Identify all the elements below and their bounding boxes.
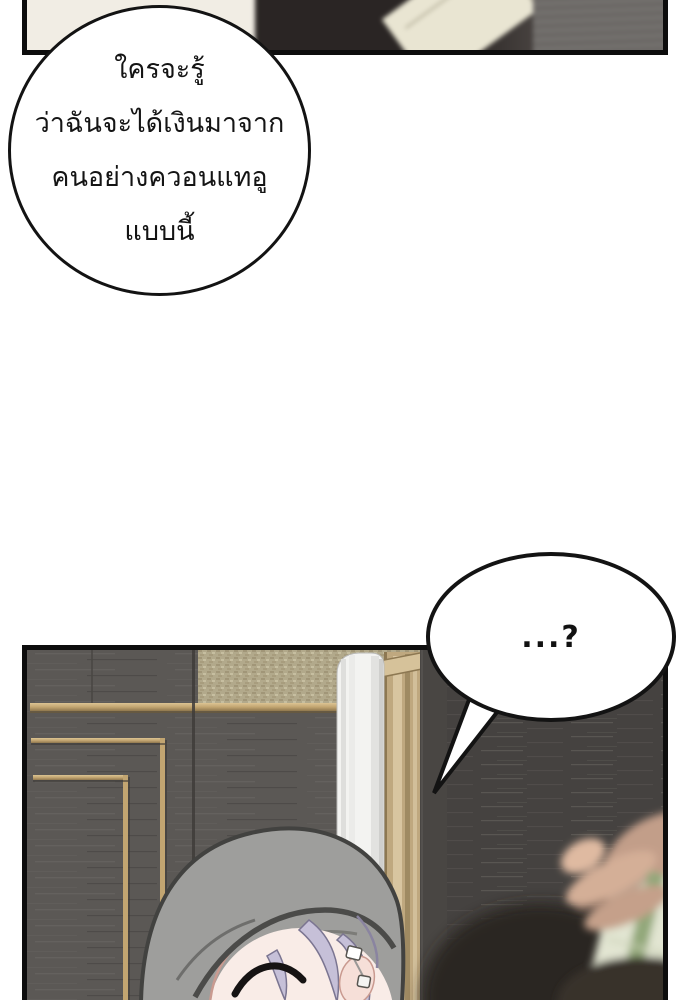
paper-text-line — [405, 0, 479, 29]
bubble-main-line-3: คนอย่างควอนแทอู — [51, 151, 267, 205]
comic-page: ใครจะรู้ ว่าฉันจะได้เงินมาจาก คนอย่างควอ… — [0, 0, 700, 1000]
bubble-main-line-1: ใครจะรู้ — [114, 43, 205, 97]
bubble-main-line-2: ว่าฉันจะได้เงินมาจาก — [35, 97, 285, 151]
speech-bubble-main: ใครจะรู้ ว่าฉันจะได้เงินมาจาก คนอย่างควอ… — [8, 5, 311, 296]
speech-bubble-reply: ...? — [426, 552, 676, 722]
bubble-main-line-4: แบบนี้ — [124, 205, 194, 259]
bubble-reply-text: ...? — [521, 620, 581, 655]
flashback-gray-area — [533, 0, 668, 55]
wall-seam-small — [91, 650, 93, 703]
